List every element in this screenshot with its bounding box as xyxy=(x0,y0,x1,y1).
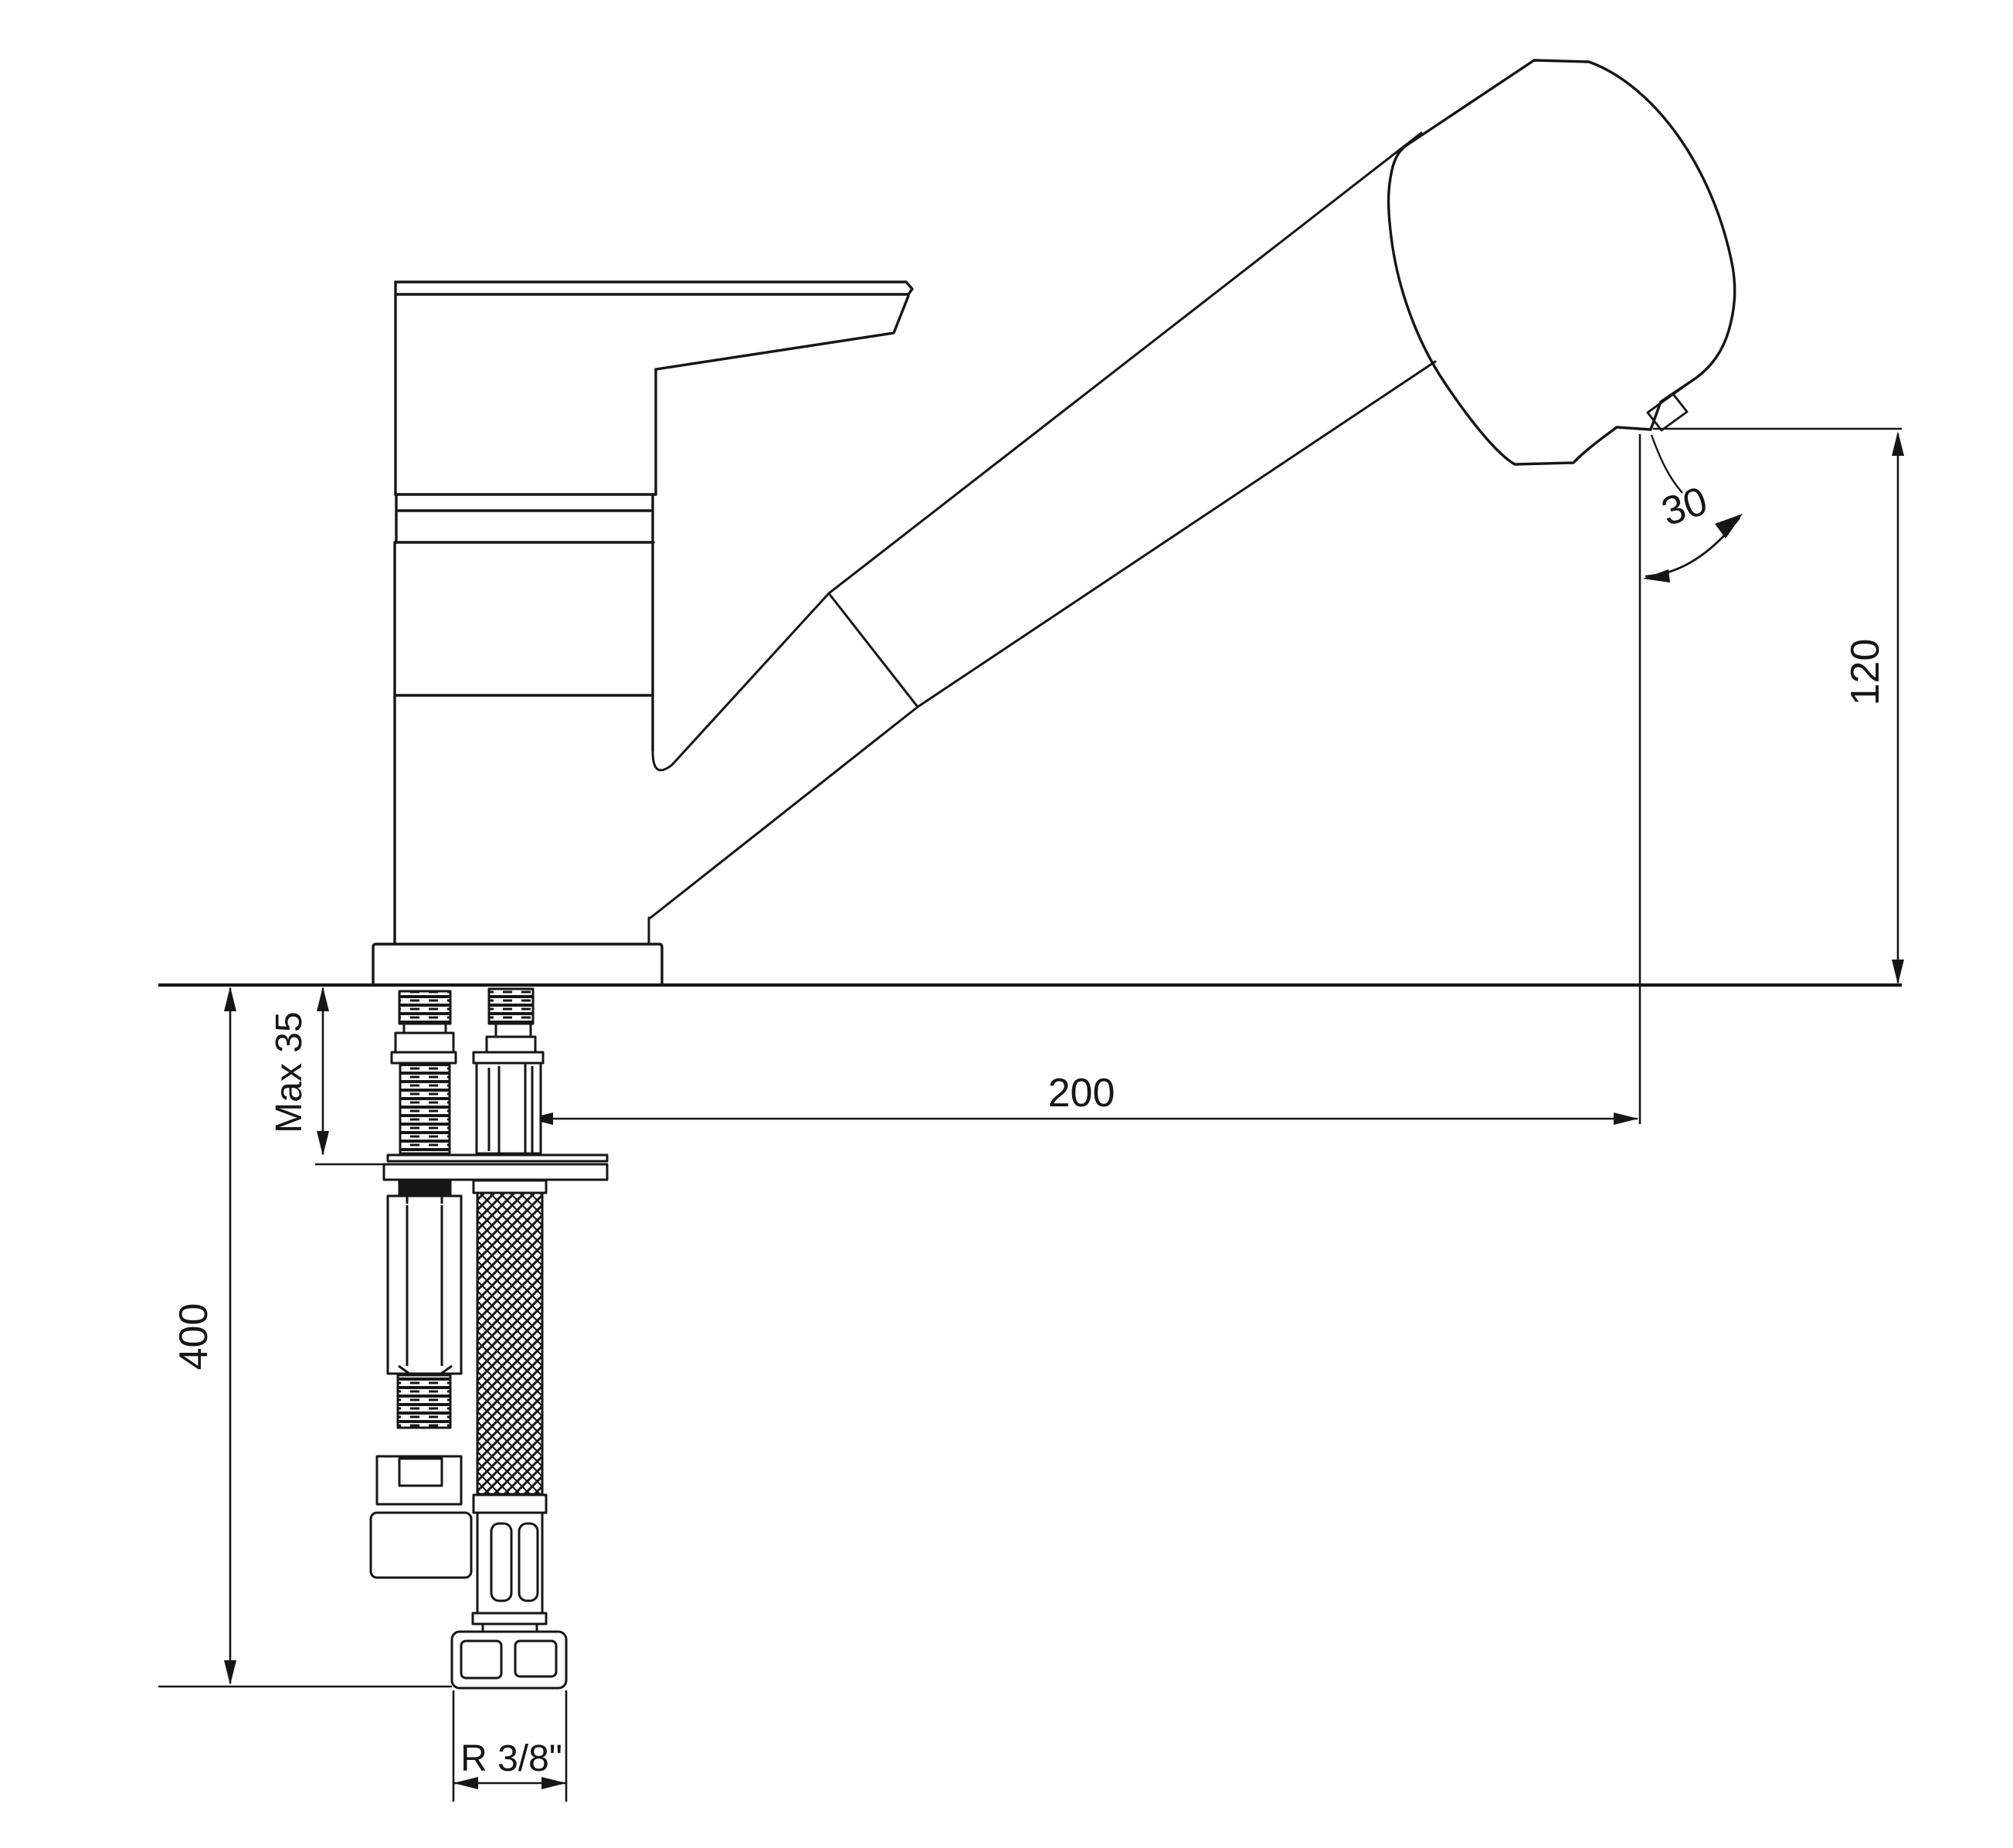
dim-label-max-thickness: Max 35 xyxy=(269,1011,310,1133)
mounting-washer-plate xyxy=(384,1155,607,1180)
dim-label-spout-height: 120 xyxy=(1843,639,1888,706)
spray-head xyxy=(1389,60,1735,464)
threaded-shank xyxy=(400,1063,450,1153)
fitting-port-left xyxy=(461,1641,501,1678)
body-collar xyxy=(395,494,653,542)
braided-hose xyxy=(477,1193,542,1494)
angle-leader-line xyxy=(1651,435,1682,493)
pullout-wand xyxy=(829,133,1435,707)
threaded-lower-stud xyxy=(398,1375,450,1428)
base-plate xyxy=(373,944,662,985)
fixing-stud xyxy=(392,991,456,1153)
spout-joint-line xyxy=(829,593,918,707)
spray-nozzle xyxy=(1648,378,1696,430)
supply-hose xyxy=(452,989,566,1688)
threaded-inlet-left xyxy=(399,991,450,1024)
dim-label-spout-reach: 200 xyxy=(1048,1071,1115,1116)
handle-lever xyxy=(395,282,912,494)
drawing-canvas: 30 120 200 Max 35 400 R 3/8" xyxy=(0,0,2013,1848)
faucet-technical-drawing: 30 120 200 Max 35 400 R 3/8" xyxy=(0,0,2013,1848)
dim-label-connection-thread: R 3/8" xyxy=(460,1738,562,1779)
fitting-port-right xyxy=(515,1641,556,1676)
threaded-inlet-right xyxy=(489,989,533,1024)
body-column xyxy=(395,542,653,944)
fixing-nut-and-cartridge xyxy=(371,1180,471,1578)
dim-label-hose-length: 400 xyxy=(171,1303,216,1371)
fixed-spout xyxy=(649,593,918,943)
dim-label-spray-angle: 30 xyxy=(1656,478,1713,535)
installation-parts xyxy=(371,989,607,1688)
stud-end-block xyxy=(371,1513,471,1578)
faucet xyxy=(373,60,1735,985)
